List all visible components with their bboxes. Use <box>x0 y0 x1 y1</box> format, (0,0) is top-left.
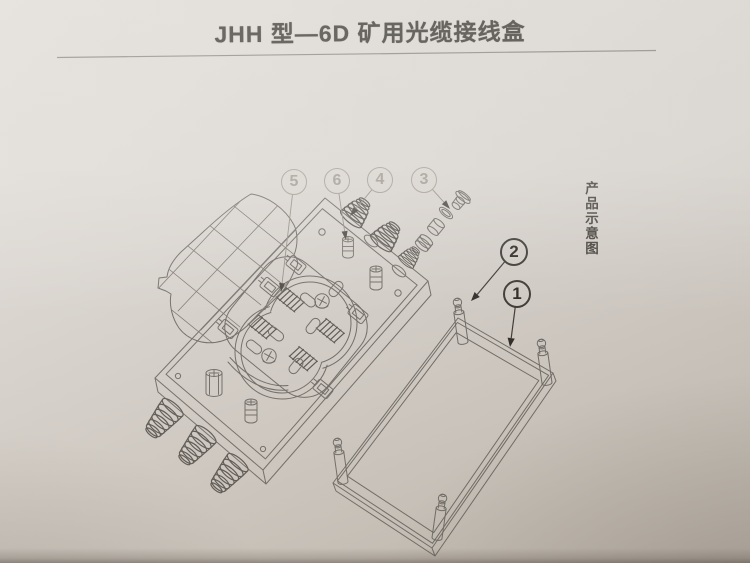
callout-6-label: 6 <box>333 172 342 190</box>
corner-post <box>536 339 552 386</box>
gland-cap <box>448 188 473 213</box>
exploded-view-drawing <box>0 0 750 563</box>
callout-2-label: 2 <box>509 242 518 262</box>
hex-standoff <box>206 370 222 397</box>
splice-tray <box>213 244 380 409</box>
gland-ring <box>438 205 455 220</box>
callout-4: 4 <box>367 167 393 193</box>
tray-screw <box>315 294 329 308</box>
callout-3: 3 <box>411 167 437 193</box>
cable-gland <box>205 451 251 498</box>
cover-screw <box>370 266 382 290</box>
side-caption: 产品示意图 <box>580 181 600 256</box>
cable-gland <box>397 243 424 270</box>
title-underline <box>57 51 656 58</box>
gland-seal <box>426 217 446 237</box>
photographed-page: JHH 型—6D 矿用光缆接线盒 <box>0 0 750 563</box>
cover-screw <box>343 237 354 259</box>
callout-1-label: 1 <box>512 284 521 304</box>
callout-6: 6 <box>324 168 350 194</box>
corner-post <box>432 494 448 541</box>
gland-clamp-nut <box>414 233 434 253</box>
tray-screw <box>262 349 276 363</box>
cable-glands-bottom <box>140 396 251 498</box>
callout-4-label: 4 <box>376 171 385 189</box>
gland-parts-exploded <box>414 188 473 253</box>
tray-slot <box>245 338 264 356</box>
tray-slot <box>267 325 286 343</box>
cover-screw <box>245 399 257 423</box>
cable-gland <box>140 396 186 443</box>
callout-1: 1 <box>503 280 531 308</box>
callout-3-label: 3 <box>420 171 429 189</box>
callout-5-label: 5 <box>290 173 299 191</box>
tray-slot <box>304 317 322 336</box>
callout-5: 5 <box>281 169 307 195</box>
tray-slot <box>287 357 305 376</box>
cable-glands-top <box>338 192 424 270</box>
leader-lines <box>279 189 515 347</box>
callout-2: 2 <box>500 238 528 266</box>
cable-gland <box>173 423 219 470</box>
splice-spring <box>289 345 318 372</box>
